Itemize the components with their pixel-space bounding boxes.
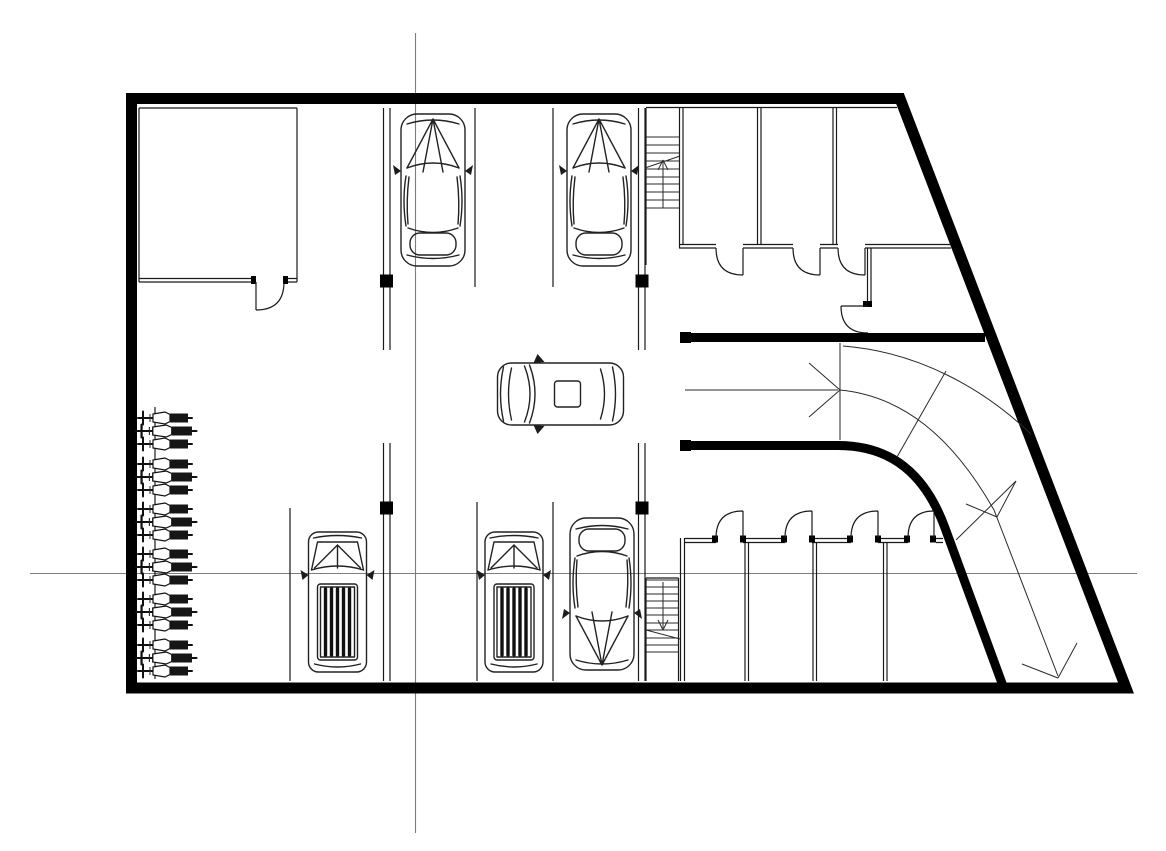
centerlines xyxy=(30,33,1137,833)
floor-plan-page xyxy=(0,0,1166,851)
motorcycle-icon xyxy=(136,652,196,665)
door-swing-icon xyxy=(256,282,284,310)
ramp-wall-lower xyxy=(685,446,1003,687)
motorcycle-icon xyxy=(138,619,192,632)
structural-column xyxy=(380,275,393,288)
motorcycle-icon xyxy=(138,665,192,678)
door-swing-icon xyxy=(838,248,865,275)
sedan-car-icon xyxy=(393,114,473,266)
motorcycle-icon xyxy=(138,412,192,425)
structural-column xyxy=(380,502,393,515)
stair-arrow-icon xyxy=(658,582,668,630)
motorcycle-icon xyxy=(136,516,196,529)
wall-end-cap xyxy=(680,440,691,451)
perimeter-wall xyxy=(132,99,1127,689)
door-swing-icon xyxy=(785,511,812,538)
stairwell-north xyxy=(645,108,680,265)
door-swing-icon xyxy=(793,248,820,275)
suv-car-icon xyxy=(301,532,375,672)
sedan-car-icon xyxy=(562,518,642,670)
motorcycle-icon xyxy=(136,606,196,619)
storage-rooms-south xyxy=(681,511,944,681)
corridor-partition xyxy=(841,248,872,333)
motorcycle-icon xyxy=(138,639,192,652)
structural-column xyxy=(636,502,649,515)
storage-rooms-north xyxy=(646,108,951,334)
motorcycle-icon xyxy=(136,471,196,484)
door-swing-icon xyxy=(841,306,868,333)
door-swing-icon xyxy=(908,511,934,538)
door-swing-icon xyxy=(716,248,743,275)
floor-plan-canvas xyxy=(0,0,1166,851)
motorcycle-icon xyxy=(138,484,192,497)
motorcycle-icon xyxy=(138,503,192,516)
stairwell-south xyxy=(646,578,680,681)
motorcycle-icon xyxy=(138,529,192,542)
motorcycle-icon xyxy=(136,561,196,574)
building-walls xyxy=(132,99,1127,689)
motorcycle-icon xyxy=(138,574,192,587)
northwest-room xyxy=(139,108,297,310)
door-jamb xyxy=(251,276,256,284)
motorcycle-icon xyxy=(136,425,196,438)
door-swing-icon xyxy=(716,511,743,538)
vehicles xyxy=(301,114,643,672)
exit-ramp xyxy=(680,332,1077,686)
motorcycle-icon xyxy=(138,548,192,561)
structural-column xyxy=(636,275,649,288)
motorcycle-parking xyxy=(136,407,196,679)
wall-end-cap xyxy=(680,332,691,343)
door-swing-icon xyxy=(851,511,878,538)
motorcycle-icon xyxy=(138,593,192,606)
suv-car-icon xyxy=(477,532,551,672)
sedan-car-icon xyxy=(559,114,639,266)
motorcycle-icon xyxy=(138,438,192,451)
motorcycle-icon xyxy=(138,458,192,471)
hatchback-car-icon xyxy=(498,354,624,434)
